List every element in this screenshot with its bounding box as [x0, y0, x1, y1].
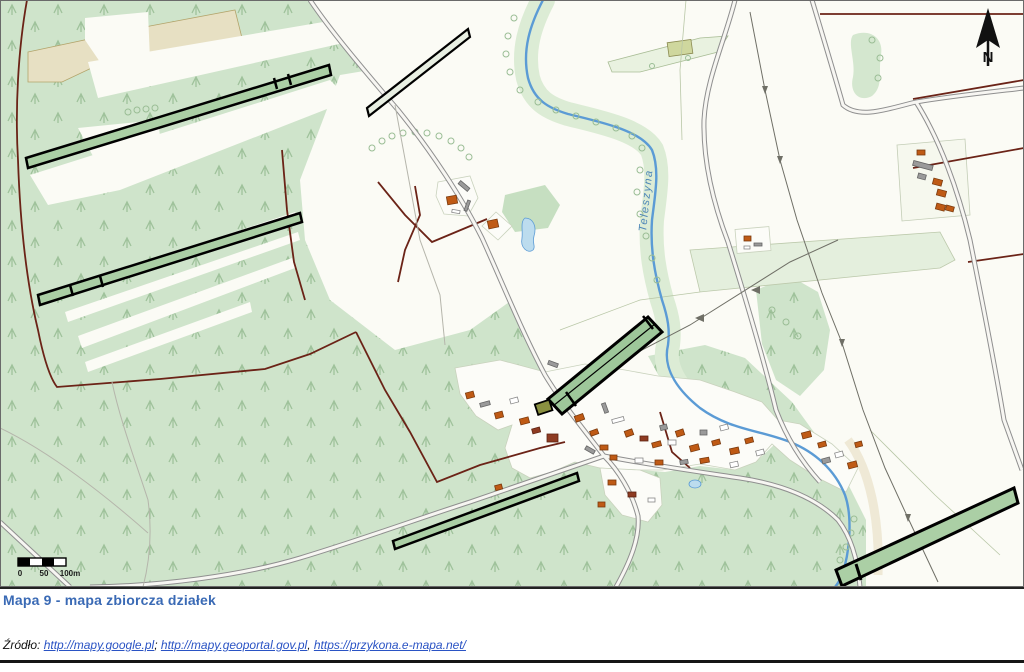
map-title: Mapa 9 - mapa zbiorcza działek: [3, 592, 216, 608]
north-label: N: [983, 49, 994, 66]
map-canvas: Teleszyna 0 50 100m N: [0, 0, 1024, 589]
small-pond: [689, 480, 701, 488]
source-sep1: ;: [154, 638, 161, 652]
source-sep2: ,: [307, 638, 314, 652]
scale-tick-100m: 100m: [60, 569, 80, 578]
pond: [522, 218, 535, 251]
page: Teleszyna 0 50 100m N Mapa 9 - mapa zbio…: [0, 0, 1024, 672]
source-link-emapa[interactable]: https://przykona.e-mapa.net/: [314, 638, 466, 652]
bottom-rule: [0, 660, 1024, 663]
source-line: Źródło: http://mapy.google.pl; http://ma…: [3, 638, 466, 652]
scale-tick-0: 0: [18, 569, 23, 578]
source-prefix: Źródło:: [3, 638, 40, 652]
source-link-google[interactable]: http://mapy.google.pl: [44, 638, 155, 652]
scale-tick-50: 50: [40, 569, 49, 578]
source-link-geoportal[interactable]: http://mapy.geoportal.gov.pl: [161, 638, 307, 652]
